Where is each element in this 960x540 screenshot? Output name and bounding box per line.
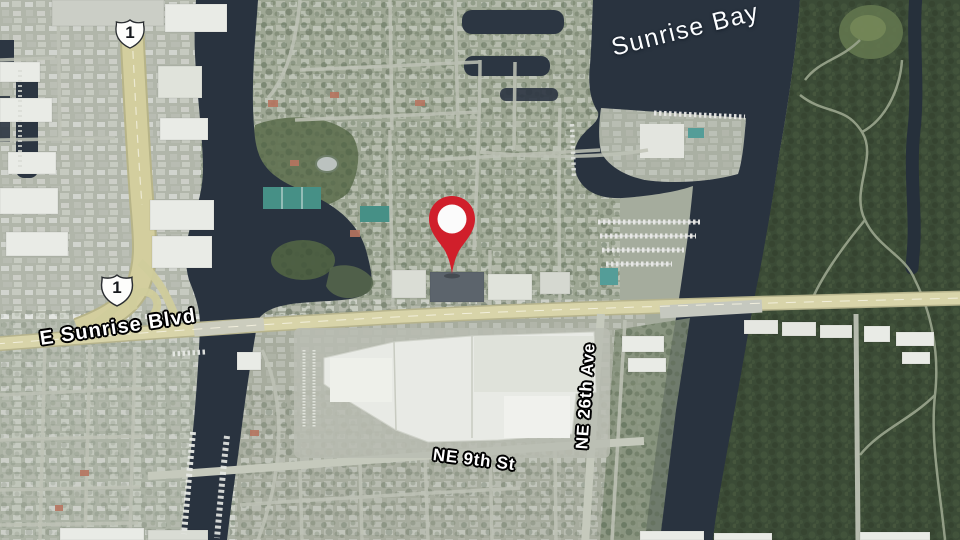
location-pin[interactable] (422, 190, 482, 280)
satellite-map[interactable]: Sunrise Bay E Sunrise Blvd NE 9th St NE … (0, 0, 960, 540)
map-pin-icon (422, 190, 482, 280)
